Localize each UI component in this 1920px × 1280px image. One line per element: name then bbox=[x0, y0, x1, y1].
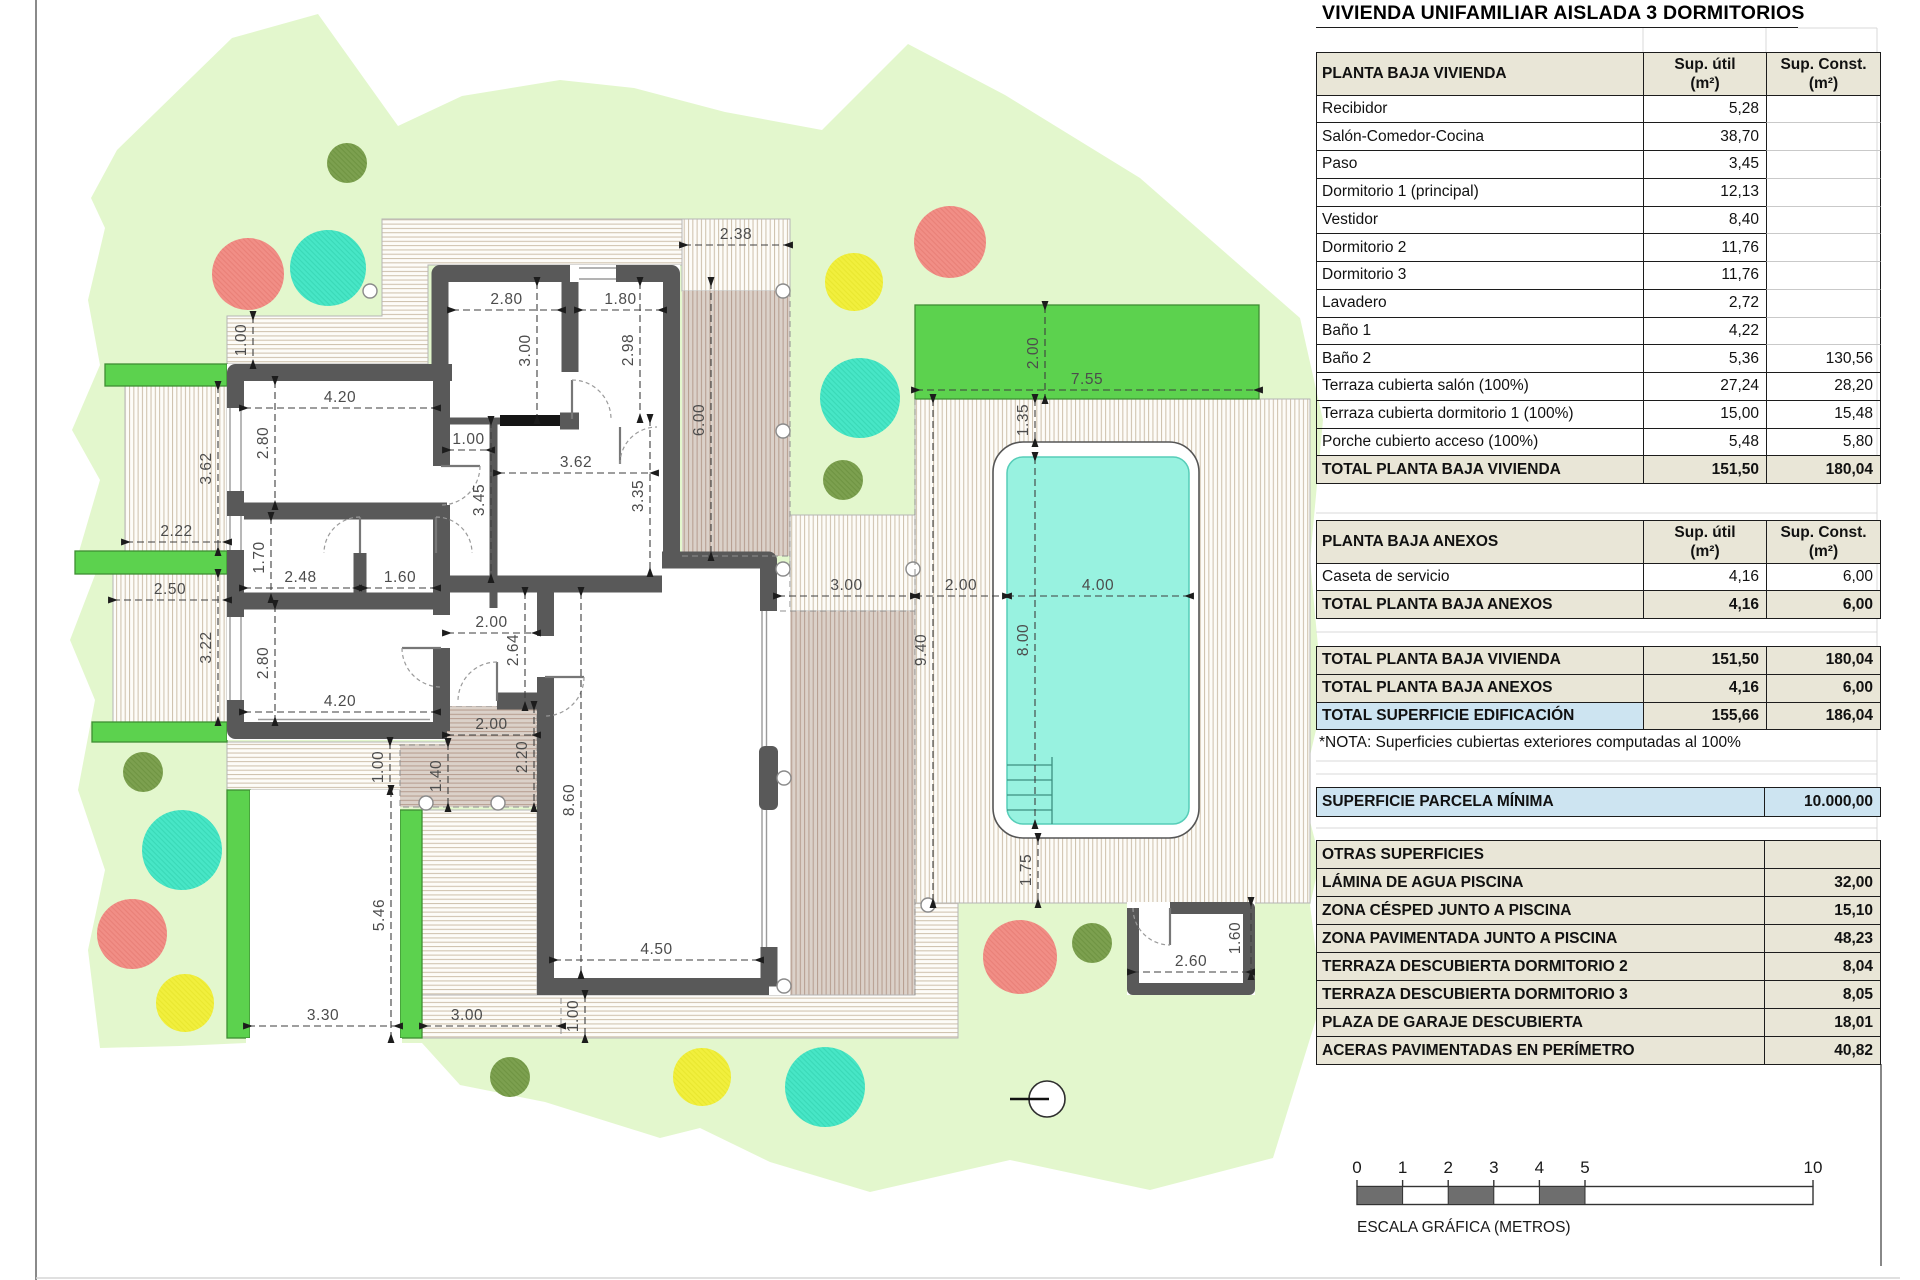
svg-text:4.00: 4.00 bbox=[1082, 577, 1114, 594]
svg-text:2.00: 2.00 bbox=[475, 614, 507, 631]
svg-text:10: 10 bbox=[1804, 1158, 1823, 1177]
svg-text:3.45: 3.45 bbox=[471, 484, 488, 516]
svg-text:2.00: 2.00 bbox=[1025, 337, 1042, 369]
svg-text:1.00: 1.00 bbox=[565, 1000, 582, 1032]
svg-text:3.62: 3.62 bbox=[198, 452, 215, 484]
svg-text:1.80: 1.80 bbox=[604, 291, 636, 308]
svg-text:2.38: 2.38 bbox=[720, 226, 752, 243]
svg-text:3.22: 3.22 bbox=[198, 631, 215, 663]
svg-text:8.00: 8.00 bbox=[1015, 624, 1032, 656]
svg-text:2.00: 2.00 bbox=[945, 577, 977, 594]
svg-text:5.46: 5.46 bbox=[371, 899, 388, 931]
svg-text:2.50: 2.50 bbox=[154, 581, 186, 598]
svg-text:1.60: 1.60 bbox=[384, 569, 416, 586]
svg-text:0: 0 bbox=[1352, 1158, 1361, 1177]
svg-text:1: 1 bbox=[1398, 1158, 1407, 1177]
svg-text:2.80: 2.80 bbox=[255, 647, 272, 679]
svg-text:1.60: 1.60 bbox=[1227, 922, 1244, 954]
svg-text:4.20: 4.20 bbox=[324, 693, 356, 710]
svg-text:4.20: 4.20 bbox=[324, 389, 356, 406]
svg-text:1.40: 1.40 bbox=[428, 760, 445, 792]
svg-text:1.00: 1.00 bbox=[452, 431, 484, 448]
svg-text:2.60: 2.60 bbox=[1175, 953, 1207, 970]
svg-text:1.70: 1.70 bbox=[251, 541, 268, 573]
svg-text:3.00: 3.00 bbox=[517, 334, 534, 366]
svg-text:4.50: 4.50 bbox=[640, 941, 672, 958]
svg-text:3.35: 3.35 bbox=[630, 480, 647, 512]
svg-text:2.48: 2.48 bbox=[284, 569, 316, 586]
svg-text:3.30: 3.30 bbox=[307, 1007, 339, 1024]
svg-text:3.00: 3.00 bbox=[830, 577, 862, 594]
svg-text:8.60: 8.60 bbox=[561, 784, 578, 816]
svg-text:3: 3 bbox=[1489, 1158, 1498, 1177]
svg-text:2.80: 2.80 bbox=[490, 291, 522, 308]
svg-text:1.35: 1.35 bbox=[1015, 404, 1032, 436]
svg-text:1.75: 1.75 bbox=[1018, 854, 1035, 886]
svg-text:9.40: 9.40 bbox=[913, 634, 930, 666]
svg-text:2.22: 2.22 bbox=[160, 523, 192, 540]
svg-text:2.80: 2.80 bbox=[255, 427, 272, 459]
svg-text:2: 2 bbox=[1443, 1158, 1452, 1177]
svg-text:4: 4 bbox=[1535, 1158, 1544, 1177]
svg-text:2.20: 2.20 bbox=[514, 741, 531, 773]
svg-text:3.00: 3.00 bbox=[451, 1007, 483, 1024]
svg-text:1.00: 1.00 bbox=[370, 751, 387, 783]
svg-text:2.98: 2.98 bbox=[620, 334, 637, 366]
svg-text:7.55: 7.55 bbox=[1071, 371, 1103, 388]
svg-text:1.00: 1.00 bbox=[233, 324, 250, 356]
svg-text:2.64: 2.64 bbox=[505, 634, 522, 666]
svg-text:ESCALA GRÁFICA (METROS): ESCALA GRÁFICA (METROS) bbox=[1357, 1219, 1571, 1236]
svg-text:2.00: 2.00 bbox=[475, 716, 507, 733]
svg-text:6.00: 6.00 bbox=[691, 404, 708, 436]
svg-text:3.62: 3.62 bbox=[560, 454, 592, 471]
svg-text:5: 5 bbox=[1580, 1158, 1589, 1177]
